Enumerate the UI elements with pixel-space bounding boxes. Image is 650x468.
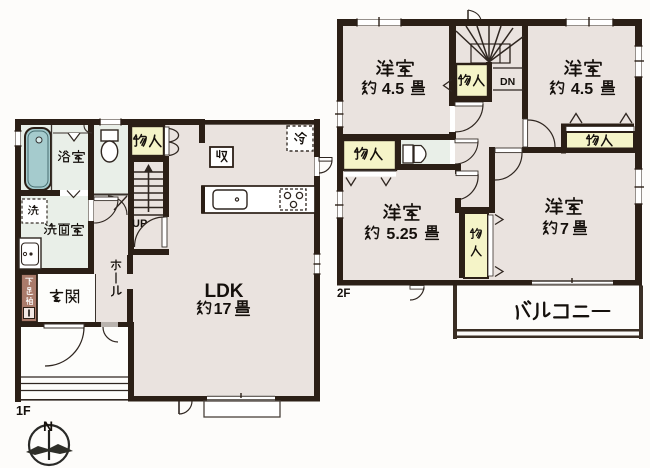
svg-text:2F: 2F xyxy=(337,288,350,300)
svg-text:LDK: LDK xyxy=(204,281,243,302)
svg-text:1F: 1F xyxy=(16,404,31,418)
svg-text:7: 7 xyxy=(560,221,569,238)
svg-text:5.25: 5.25 xyxy=(386,226,417,243)
svg-text:DN: DN xyxy=(500,76,515,88)
svg-text:17: 17 xyxy=(214,301,232,318)
svg-text:4.5: 4.5 xyxy=(382,81,404,98)
svg-text:4.5: 4.5 xyxy=(571,81,593,98)
